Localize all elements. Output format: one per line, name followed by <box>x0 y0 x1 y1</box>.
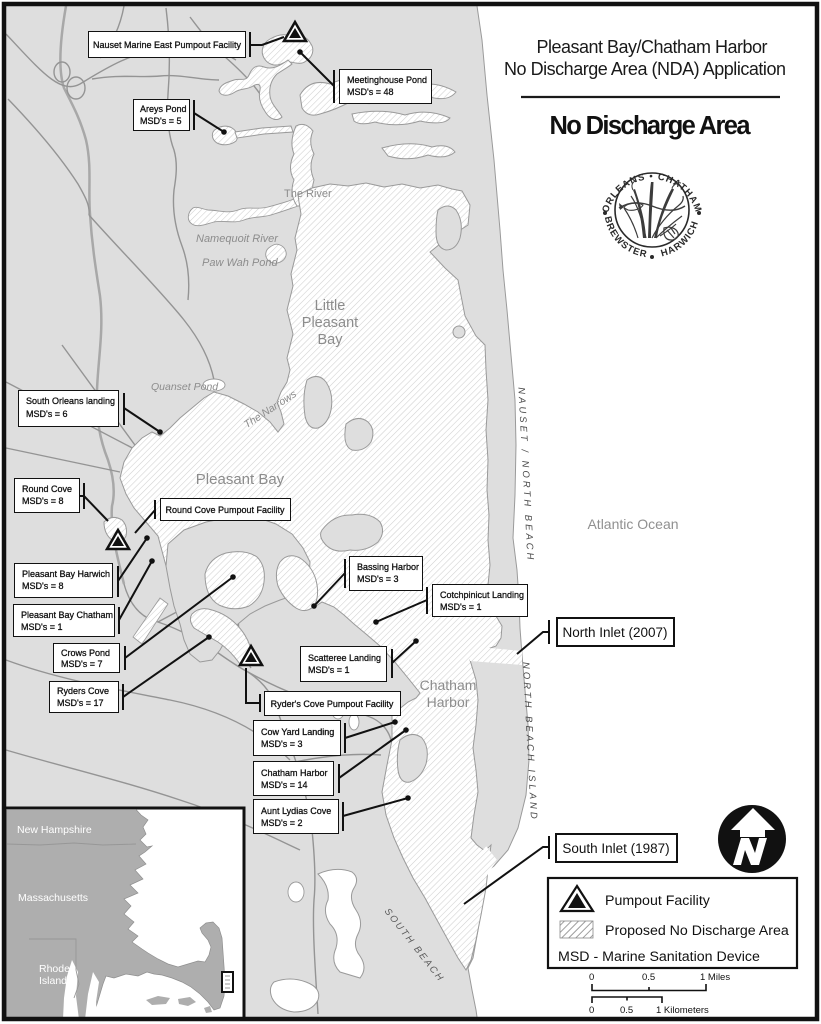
svg-text:Round Cove Pumpout Facility: Round Cove Pumpout Facility <box>165 505 285 515</box>
svg-text:Ryder's Cove Pumpout Facility: Ryder's Cove Pumpout Facility <box>271 699 394 709</box>
svg-text:North Inlet (2007): North Inlet (2007) <box>562 625 667 640</box>
svg-text:0.5: 0.5 <box>620 1005 633 1016</box>
svg-text:1 Miles: 1 Miles <box>700 972 730 983</box>
svg-text:Chatham: Chatham <box>420 677 477 693</box>
svg-text:MSD's = 1: MSD's = 1 <box>21 622 62 632</box>
svg-text:Aunt Lydias Cove: Aunt Lydias Cove <box>261 806 331 816</box>
svg-text:MSD's = 7: MSD's = 7 <box>61 659 102 669</box>
svg-text:Rhode: Rhode <box>39 963 70 975</box>
svg-text:MSD - Marine Sanitation Device: MSD - Marine Sanitation Device <box>558 949 760 965</box>
svg-text:Harbor: Harbor <box>427 694 470 710</box>
svg-text:Areys Pond: Areys Pond <box>140 104 187 114</box>
svg-text:Atlantic Ocean: Atlantic Ocean <box>587 516 678 532</box>
svg-text:Pleasant Bay Chatham: Pleasant Bay Chatham <box>21 610 113 620</box>
svg-text:0: 0 <box>589 1005 594 1016</box>
svg-text:Paw Wah Pond: Paw Wah Pond <box>202 257 279 269</box>
svg-text:MSD's = 1: MSD's = 1 <box>440 602 481 612</box>
svg-text:MSD's = 8: MSD's = 8 <box>22 496 63 506</box>
svg-text:Scatteree Landing: Scatteree Landing <box>308 653 381 663</box>
svg-text:Quanset Pond: Quanset Pond <box>151 381 219 393</box>
svg-text:Pleasant Bay: Pleasant Bay <box>196 471 285 488</box>
svg-text:Ryders Cove: Ryders Cove <box>57 686 109 696</box>
svg-text:Pleasant: Pleasant <box>302 315 358 331</box>
svg-text:Pleasant Bay/Chatham Harbor: Pleasant Bay/Chatham Harbor <box>537 37 768 57</box>
svg-text:MSD's = 5: MSD's = 5 <box>140 116 181 126</box>
svg-text:MSD's = 14: MSD's = 14 <box>261 780 308 790</box>
svg-text:Nauset Marine East Pumpout Fac: Nauset Marine East Pumpout Facility <box>93 40 242 50</box>
svg-text:Island: Island <box>39 975 67 987</box>
svg-text:Pleasant Bay Harwich: Pleasant Bay Harwich <box>22 569 110 579</box>
svg-text:Crows Pond: Crows Pond <box>61 648 110 658</box>
svg-text:Meetinghouse Pond: Meetinghouse Pond <box>347 75 427 85</box>
svg-text:1 Kilometers: 1 Kilometers <box>656 1005 709 1016</box>
svg-text:MSD's = 2: MSD's = 2 <box>261 818 302 828</box>
svg-text:Proposed No Discharge Area: Proposed No Discharge Area <box>605 923 789 939</box>
svg-text:MSD's = 48: MSD's = 48 <box>347 87 394 97</box>
svg-text:MSD's = 8: MSD's = 8 <box>22 581 63 591</box>
svg-text:South Orleans landing: South Orleans landing <box>26 396 115 406</box>
svg-text:New Hampshire: New Hampshire <box>17 824 92 836</box>
svg-text:No Discharge Area (NDA) Applic: No Discharge Area (NDA) Application <box>504 59 786 79</box>
svg-text:Namequoit River: Namequoit River <box>196 233 279 245</box>
svg-text:Bay: Bay <box>318 332 344 348</box>
svg-text:MSD's = 6: MSD's = 6 <box>26 409 67 419</box>
svg-text:0.5: 0.5 <box>642 972 655 983</box>
svg-text:Massachusetts: Massachusetts <box>18 892 88 904</box>
svg-text:No Discharge Area: No Discharge Area <box>550 112 752 140</box>
svg-text:MSD's = 1: MSD's = 1 <box>308 665 349 675</box>
svg-text:Cotchpinicut Landing: Cotchpinicut Landing <box>440 590 524 600</box>
svg-text:MSD's = 3: MSD's = 3 <box>357 574 398 584</box>
svg-text:Chatham Harbor: Chatham Harbor <box>261 768 328 778</box>
svg-text:MSD's = 17: MSD's = 17 <box>57 698 104 708</box>
svg-text:MSD's = 3: MSD's = 3 <box>261 739 302 749</box>
svg-text:The River: The River <box>284 188 332 200</box>
svg-text:Bassing Harbor: Bassing Harbor <box>357 562 419 572</box>
svg-text:Pumpout Facility: Pumpout Facility <box>605 893 711 909</box>
svg-text:South Inlet (1987): South Inlet (1987) <box>562 841 669 856</box>
svg-text:0: 0 <box>589 972 594 983</box>
svg-text:Cow Yard Landing: Cow Yard Landing <box>261 727 334 737</box>
svg-text:Little: Little <box>315 298 346 314</box>
svg-text:Round Cove: Round Cove <box>22 484 72 494</box>
